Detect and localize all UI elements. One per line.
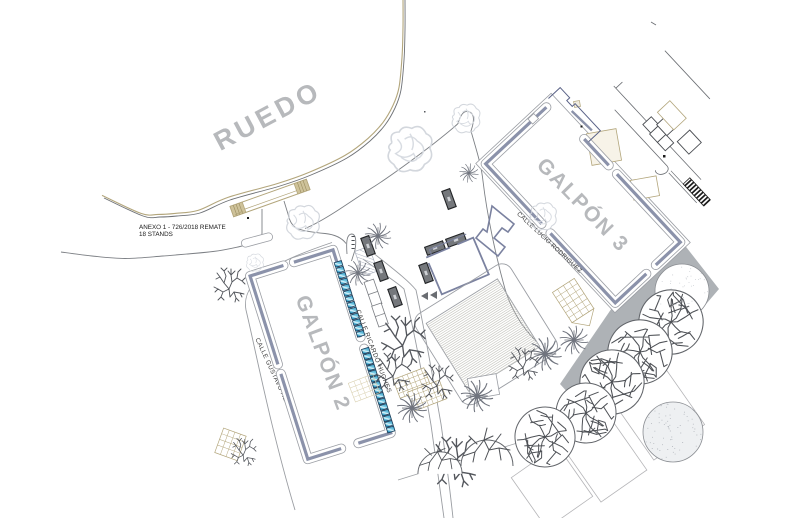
svg-text:ANEXO 1 - 726/2018 REMATE: ANEXO 1 - 726/2018 REMATE: [139, 224, 226, 231]
svg-text:18 STANDS: 18 STANDS: [139, 231, 173, 238]
